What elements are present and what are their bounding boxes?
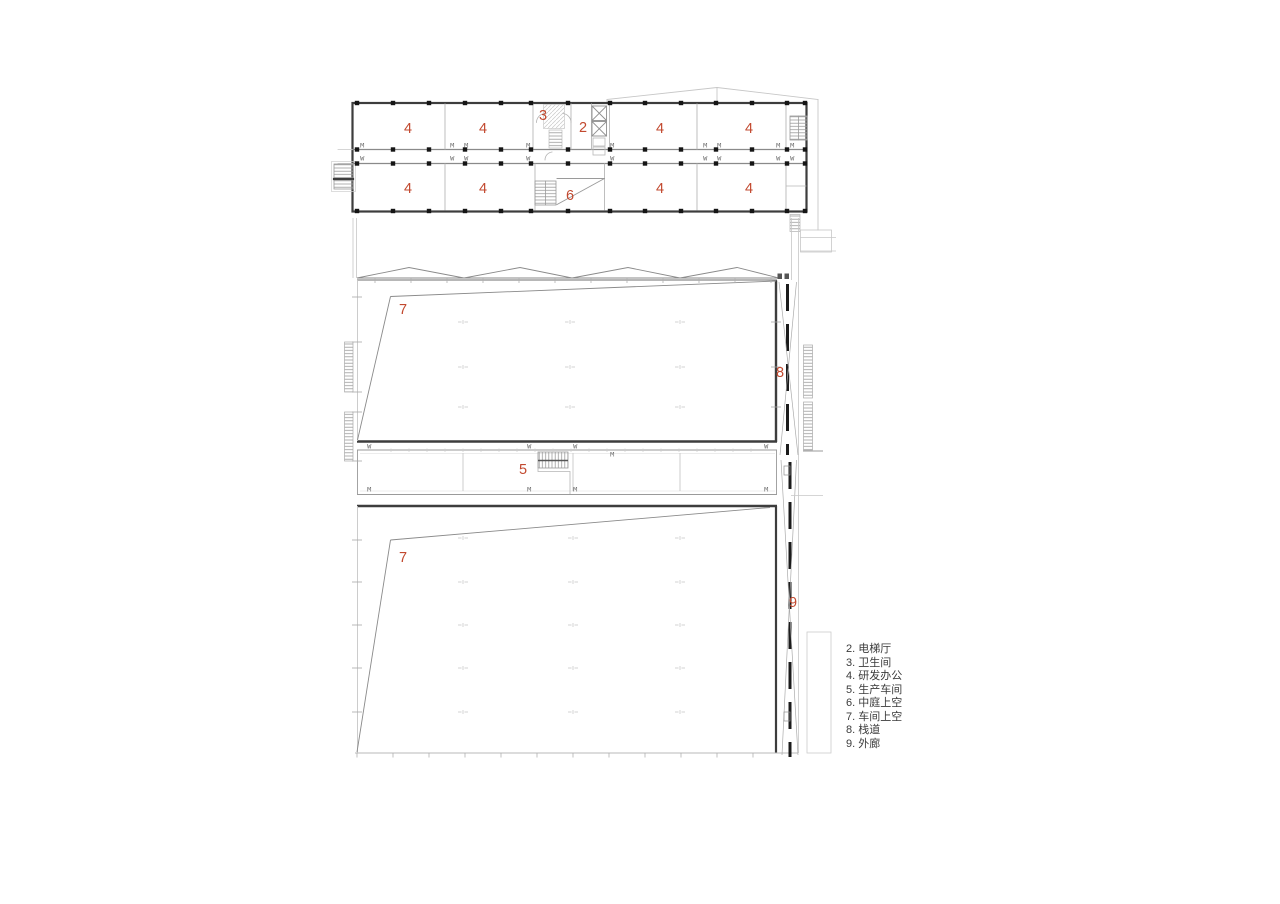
room-number-label: 4 xyxy=(404,182,412,197)
room-number-label: 2 xyxy=(579,121,587,136)
casement-window-icon: W xyxy=(360,156,364,162)
room-number-label: 4 xyxy=(479,122,487,137)
lower-workshop-void xyxy=(355,506,798,753)
legend-item: 3. 卫生间 xyxy=(846,657,902,671)
grid-cross xyxy=(568,623,578,627)
stair-icon xyxy=(549,130,562,148)
column-icon xyxy=(803,101,807,105)
generated-decor xyxy=(352,101,807,758)
casement-window-icon: M xyxy=(764,487,768,493)
room-number-label: 4 xyxy=(745,182,753,197)
column-icon xyxy=(785,209,789,213)
grid-cross xyxy=(458,623,468,627)
left-exterior-stair xyxy=(332,162,356,192)
column-icon xyxy=(427,161,431,165)
casement-window-icon: M xyxy=(450,143,454,149)
casement-window-icon: W xyxy=(464,156,468,162)
column-icon xyxy=(355,209,359,213)
room-number-label: 3 xyxy=(539,109,547,124)
column-icon xyxy=(643,209,647,213)
room-number-label: 7 xyxy=(399,303,407,318)
grid-cross xyxy=(675,365,685,369)
exterior-stair-icon xyxy=(345,412,354,461)
column-icon xyxy=(679,161,683,165)
column-icon xyxy=(643,161,647,165)
grid-cross xyxy=(565,365,575,369)
walkway-8 xyxy=(779,282,823,455)
column-icon xyxy=(803,209,807,213)
grid-cross xyxy=(458,320,468,324)
grid-cross xyxy=(675,536,685,540)
void-edge-line xyxy=(357,540,391,752)
right-extension xyxy=(790,215,836,253)
room-number-label: 8 xyxy=(776,366,784,381)
column-icon xyxy=(608,209,612,213)
column-icon xyxy=(391,161,395,165)
column-icon xyxy=(750,161,754,165)
column-icon xyxy=(566,161,570,165)
room-number-label: 4 xyxy=(404,122,412,137)
column-icon xyxy=(427,147,431,151)
column-icon xyxy=(750,147,754,151)
column-icon xyxy=(391,209,395,213)
casement-window-icon: W xyxy=(764,444,768,450)
grid-cross xyxy=(568,666,578,670)
column-icon xyxy=(355,161,359,165)
casement-window-icon: M xyxy=(527,487,531,493)
exterior-stair-icon xyxy=(345,342,354,392)
grid-cross xyxy=(675,580,685,584)
casement-window-icon: W xyxy=(610,156,614,162)
column-icon xyxy=(643,101,647,105)
casement-window-icon: M xyxy=(573,487,577,493)
casement-window-icon: W xyxy=(573,444,577,450)
grid-cross xyxy=(675,666,685,670)
legend-item: 4. 研发办公 xyxy=(846,670,902,684)
column-icon xyxy=(499,147,503,151)
column-icon xyxy=(643,147,647,151)
column-icon xyxy=(785,101,789,105)
legend-item: 2. 电梯厅 xyxy=(846,643,902,657)
casement-window-icon: W xyxy=(526,156,530,162)
room-number-label: 4 xyxy=(656,182,664,197)
void-edge-line xyxy=(391,508,771,541)
grid-cross xyxy=(458,666,468,670)
casement-window-icon: W xyxy=(776,156,780,162)
grid-cross xyxy=(565,320,575,324)
column-icon xyxy=(355,147,359,151)
upper-workshop-void xyxy=(345,280,778,461)
column-icon xyxy=(427,209,431,213)
grid-cross xyxy=(458,405,468,409)
column-icon xyxy=(529,101,533,105)
column-icon xyxy=(714,209,718,213)
casement-window-icon: M xyxy=(610,143,614,149)
exterior-stair-icon xyxy=(804,345,813,398)
legend: 2. 电梯厅3. 卫生间4. 研发办公5. 生产车间6. 中庭上空7. 车间上空… xyxy=(846,643,902,751)
column-icon xyxy=(566,101,570,105)
production-strip-5 xyxy=(357,450,777,495)
void-edge-line xyxy=(358,297,391,441)
casement-window-icon: W xyxy=(717,156,721,162)
column-icon xyxy=(529,209,533,213)
room-number-label: 4 xyxy=(479,182,487,197)
room-number-label: 9 xyxy=(789,596,797,611)
casement-window-icon: M xyxy=(790,143,794,149)
column-icon xyxy=(499,209,503,213)
top-building xyxy=(332,88,819,231)
column-icon xyxy=(355,101,359,105)
grid-cross xyxy=(458,365,468,369)
column-icon xyxy=(679,209,683,213)
casement-window-icon: M xyxy=(526,143,530,149)
casement-window-icon: M xyxy=(464,143,468,149)
casement-window-icon: W xyxy=(527,444,531,450)
grid-cross xyxy=(568,710,578,714)
exterior-stair-icon xyxy=(804,402,813,450)
casement-window-icon: W xyxy=(703,156,707,162)
grid-cross xyxy=(675,623,685,627)
column-icon xyxy=(566,209,570,213)
legend-item: 8. 栈道 xyxy=(846,724,902,738)
casement-window-icon: W xyxy=(790,156,794,162)
adjacent-structure-outline xyxy=(807,632,831,753)
wc-fixtures xyxy=(593,138,605,155)
casement-window-icon: M xyxy=(717,143,721,149)
column-icon xyxy=(427,101,431,105)
elevator-shafts xyxy=(592,106,607,136)
column-icon xyxy=(785,161,789,165)
grid-cross xyxy=(675,710,685,714)
column-icon xyxy=(785,147,789,151)
casement-window-icon: W xyxy=(450,156,454,162)
column-icon xyxy=(679,101,683,105)
casement-window-icon: M xyxy=(610,452,614,458)
casement-window-icon: W xyxy=(367,444,371,450)
grid-cross xyxy=(568,580,578,584)
floor-plan-canvas: 4432444464478579 MMMMMMMMMWWWWWWWWWWWWWM… xyxy=(0,0,1280,904)
legend-item: 5. 生产车间 xyxy=(846,684,902,698)
casement-window-icon: M xyxy=(367,487,371,493)
room-number-label: 7 xyxy=(399,551,407,566)
plan-drawing xyxy=(0,0,1280,904)
column-icon xyxy=(566,147,570,151)
column-icon xyxy=(391,101,395,105)
column-icon xyxy=(714,101,718,105)
sawtooth-roof xyxy=(357,268,789,280)
column-icon xyxy=(499,161,503,165)
casement-window-icon: M xyxy=(776,143,780,149)
column-icon xyxy=(803,161,807,165)
column-icon xyxy=(608,101,612,105)
column-icon xyxy=(750,209,754,213)
grid-cross xyxy=(675,320,685,324)
column-icon xyxy=(750,101,754,105)
room-number-label: 4 xyxy=(656,122,664,137)
casement-window-icon: M xyxy=(360,143,364,149)
grid-cross xyxy=(675,405,685,409)
grid-cross xyxy=(458,710,468,714)
legend-item: 6. 中庭上空 xyxy=(846,697,902,711)
grid-cross xyxy=(458,580,468,584)
room-number-label: 4 xyxy=(745,122,753,137)
column-icon xyxy=(679,147,683,151)
grid-cross xyxy=(458,536,468,540)
column-icon xyxy=(499,101,503,105)
room-number-label: 6 xyxy=(566,189,574,204)
grid-cross xyxy=(565,405,575,409)
room-number-label: 5 xyxy=(519,463,527,478)
column-icon xyxy=(463,209,467,213)
legend-item: 7. 车间上空 xyxy=(846,711,902,725)
column-icon xyxy=(391,147,395,151)
column-icon xyxy=(803,147,807,151)
grid-cross xyxy=(568,536,578,540)
legend-item: 9. 外廊 xyxy=(846,738,902,752)
casement-window-icon: M xyxy=(703,143,707,149)
void-edge-line xyxy=(391,281,777,297)
column-icon xyxy=(463,101,467,105)
